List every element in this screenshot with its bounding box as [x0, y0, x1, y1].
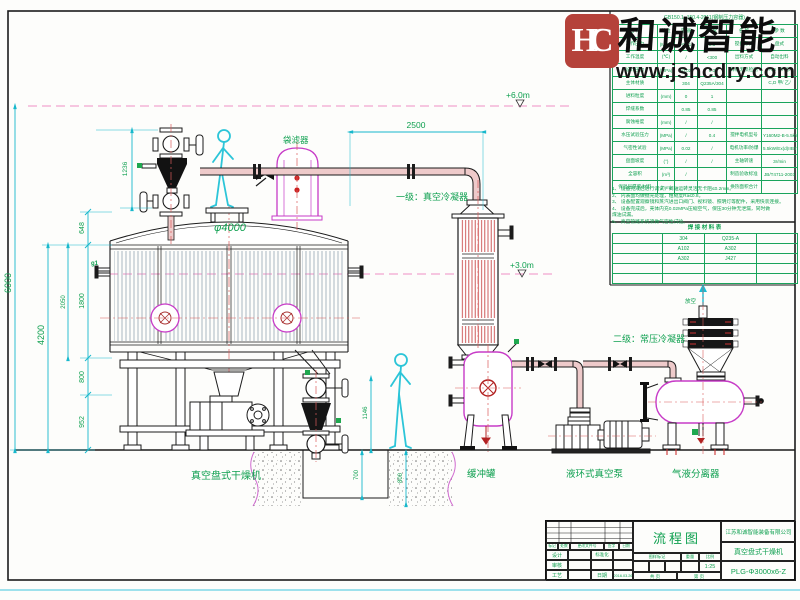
title-block: 标记 处数 更改文件号 签字 日期 设计 标准化 审核 工艺 日期 2016.0…	[545, 520, 795, 580]
revision-strip	[546, 521, 633, 543]
label-separator: 气液分离器	[672, 468, 720, 480]
table-cell: 0.85	[675, 103, 698, 116]
label-buffer-tank: 缓冲罐	[467, 468, 496, 480]
technical-notes: 1、 设备完成后进行调试，阀轴运转灵活无卡阻≤0.2mm。2、 内表面均做抛光处…	[612, 187, 798, 227]
scale-label: 比例	[699, 553, 721, 561]
table-cell: 304	[663, 234, 705, 244]
dim-952: 952	[79, 416, 86, 428]
table-cell: 焊缝系数	[613, 103, 658, 116]
table-cell: 主轴转速	[727, 155, 762, 168]
table-cell	[727, 116, 762, 129]
dim-2050: 2050	[61, 295, 67, 309]
table-cell: (mm)	[658, 116, 675, 129]
table-cell	[757, 264, 798, 274]
scale-value: 1:25	[699, 561, 721, 572]
table-cell	[757, 274, 798, 284]
elevation-6m: +6.0m	[506, 90, 530, 100]
website-url[interactable]: www.jshcdry.com	[616, 60, 798, 84]
table-cell	[613, 244, 663, 254]
table-cell: JB/T4711-2003	[762, 168, 798, 181]
weld-material-table: 304Q235-AA102A302A302J427	[612, 233, 798, 284]
table-cell: (MPa)	[658, 129, 675, 142]
separator-drain	[697, 423, 705, 444]
note-line: 1、 设备完成后进行调试，阀轴运转灵活无卡阻≤0.2mm。	[612, 187, 798, 194]
label-vacuum-pump: 液环式真空泵	[566, 468, 624, 480]
table-cell: 0	[675, 90, 698, 103]
buffer-tank	[449, 339, 521, 452]
label-nozzle-g1: g1	[91, 261, 99, 267]
elevation-marks: +6.0m +3.0m	[506, 90, 534, 277]
elevation-3m: +3.0m	[510, 260, 534, 270]
table-cell	[762, 90, 798, 103]
table-cell	[762, 103, 798, 116]
label-dryer: 真空盘式干燥机	[191, 469, 261, 482]
table-cell: Y160M2-B-5.5kW	[762, 129, 798, 142]
table-cell: 水压试验压力	[613, 129, 658, 142]
dim-648: 648	[79, 222, 86, 234]
table-cell: /	[698, 116, 727, 129]
table-cell: Q235-A	[705, 234, 757, 244]
table-cell	[757, 244, 798, 254]
table-cell	[613, 254, 663, 264]
dim-4200: 4200	[36, 325, 46, 345]
feed-hopper-flange	[157, 158, 187, 164]
table-cell	[658, 103, 675, 116]
rev-header-file: 更改文件号	[570, 543, 604, 550]
logo-monogram: HC	[572, 22, 605, 60]
dim-2500: 2500	[407, 120, 426, 130]
role-standardize: 标准化	[591, 550, 613, 560]
company-name: 江苏和诚智能装备有限公司	[721, 521, 796, 542]
table-cell	[705, 274, 757, 284]
sign-cell	[591, 560, 613, 570]
table-cell	[663, 274, 705, 284]
table-cell	[727, 103, 762, 116]
note-line: 4、 设备完成后，壳体内充0.02MPa压缩空气，保压30分钟无泄漏，同时做	[612, 207, 798, 214]
vacuum-pump	[548, 417, 656, 453]
valve-indicator	[692, 429, 698, 435]
cad-drawing-page: { "logo": { "monogram": "HC", "brand": "…	[0, 0, 800, 600]
weld-table-title: 焊 接 材 料 表	[612, 224, 797, 233]
table-cell	[757, 254, 798, 264]
table-cell: 腐蚀裕度	[613, 116, 658, 129]
company-logo: HC	[565, 14, 619, 68]
note-line: 3、 设备配置观察镜和蒸汽进出口阀门、视料镜、照明灯等配件，采用快装连接。	[612, 200, 798, 207]
table-cell: 搅拌电机型号	[727, 129, 762, 142]
table-cell: (°)	[658, 155, 675, 168]
sign-cell	[568, 570, 591, 581]
table-cell: 进料粒度	[613, 90, 658, 103]
table-cell	[762, 116, 798, 129]
table-cell	[698, 168, 727, 181]
suction-pipe	[512, 357, 681, 417]
mark-cell	[649, 561, 665, 572]
table-cell	[613, 234, 663, 244]
rev-header-date: 日期	[619, 543, 633, 550]
table-cell: /	[675, 129, 698, 142]
handwheel-upper	[342, 379, 348, 397]
note-line: 煤油试漏。	[612, 213, 798, 220]
worker-platform	[206, 208, 248, 222]
dim-800: 800	[79, 371, 86, 383]
table-cell: /	[698, 142, 727, 155]
table-cell: A102	[663, 244, 705, 254]
table-cell: 气密性试验	[613, 142, 658, 155]
valve-indicator	[336, 418, 341, 423]
rev-header-mark: 标记	[546, 543, 558, 550]
date-value: 2016.03.26	[613, 570, 633, 581]
table-cell: /	[675, 116, 698, 129]
table-cell: /	[675, 155, 698, 168]
label-condenser1: 一级：真空冷凝器	[396, 191, 468, 202]
table-cell: (mm)	[658, 90, 675, 103]
table-cell: 全容积	[613, 168, 658, 181]
dim-1236: 1236	[122, 161, 129, 176]
doc-type: 流程图	[633, 521, 721, 553]
table-cell: A302	[663, 254, 705, 264]
valve-indicator	[137, 163, 142, 168]
mark-cell	[633, 561, 649, 572]
table-cell: 制造验收标准	[727, 168, 762, 181]
table-cell: 5.5kW/Ex(d)IIBT4	[762, 142, 798, 155]
dim-1800: 1800	[79, 293, 86, 309]
table-cell: 电机功率/防爆	[727, 142, 762, 155]
dim-800b: 800	[398, 472, 404, 483]
dim-1146: 1146	[363, 406, 369, 420]
table-cell	[705, 264, 757, 274]
buffer-drain	[482, 426, 490, 444]
table-cell	[663, 264, 705, 274]
table-cell: 0.85	[698, 103, 727, 116]
weight-cell	[681, 561, 699, 572]
sign-cell	[613, 550, 633, 560]
dim-diameter: φ4000	[214, 222, 247, 234]
gear-motor	[186, 372, 269, 450]
separator-nozzle	[744, 396, 763, 406]
pit	[251, 450, 456, 506]
sign-cell	[568, 560, 591, 570]
bag-filter	[256, 142, 322, 230]
dim-6000: 6000	[3, 273, 13, 293]
weight-label: 重量	[681, 553, 699, 561]
table-cell	[727, 90, 762, 103]
table-cell	[757, 234, 798, 244]
table-cell: 盘面坡度	[613, 155, 658, 168]
table-cell: /	[675, 168, 698, 181]
role-design: 设计	[546, 550, 568, 560]
handwheel-lower	[342, 435, 348, 453]
dim-700: 700	[354, 469, 360, 480]
feed-handwheel-top	[196, 135, 203, 155]
valve-indicator	[514, 339, 519, 344]
mark-label: 图样标记	[633, 553, 681, 561]
worker-figure-ground	[390, 354, 411, 448]
table-cell: A302	[705, 244, 757, 254]
valve-indicator	[305, 370, 310, 375]
role-process: 工艺	[546, 570, 568, 581]
table-cell	[613, 264, 663, 274]
label-vent: 放空	[685, 297, 697, 305]
table-cell: J427	[705, 254, 757, 264]
model-number: PLG-Φ3000x6-Z	[721, 561, 796, 581]
table-cell: /	[698, 155, 727, 168]
rev-header-sign: 签字	[604, 543, 619, 550]
product-name: 真空盘式干燥机	[721, 542, 796, 561]
label-condenser2: 二级：常压冷凝器	[613, 333, 685, 344]
role-check: 审核	[546, 560, 568, 570]
table-cell	[613, 274, 663, 284]
pages-total: 共 页	[633, 572, 677, 581]
pages-page: 第 页	[677, 572, 721, 581]
rev-header-count: 处数	[558, 543, 570, 550]
condenser-1	[452, 180, 513, 359]
condenser2-funnel	[688, 348, 733, 372]
feed-hopper	[157, 164, 187, 188]
feed-handwheel-bottom	[140, 192, 147, 212]
label-bag-filter: 袋滤器	[283, 135, 309, 145]
table-cell: (m³)	[658, 168, 675, 181]
condenser1-nozzle	[498, 226, 513, 239]
table-cell: 1	[698, 90, 727, 103]
sign-cell	[613, 560, 633, 570]
table-cell: (MPa)	[658, 142, 675, 155]
sign-cell	[568, 550, 591, 560]
condenser2-plates	[683, 318, 738, 348]
mark-cell	[665, 561, 681, 572]
date-label: 日期	[591, 570, 613, 581]
table-cell: 3r/min	[762, 155, 798, 168]
table-cell: 0.4	[698, 129, 727, 142]
table-cell: 0.02	[675, 142, 698, 155]
brand-name: 和诚智能	[616, 12, 799, 60]
